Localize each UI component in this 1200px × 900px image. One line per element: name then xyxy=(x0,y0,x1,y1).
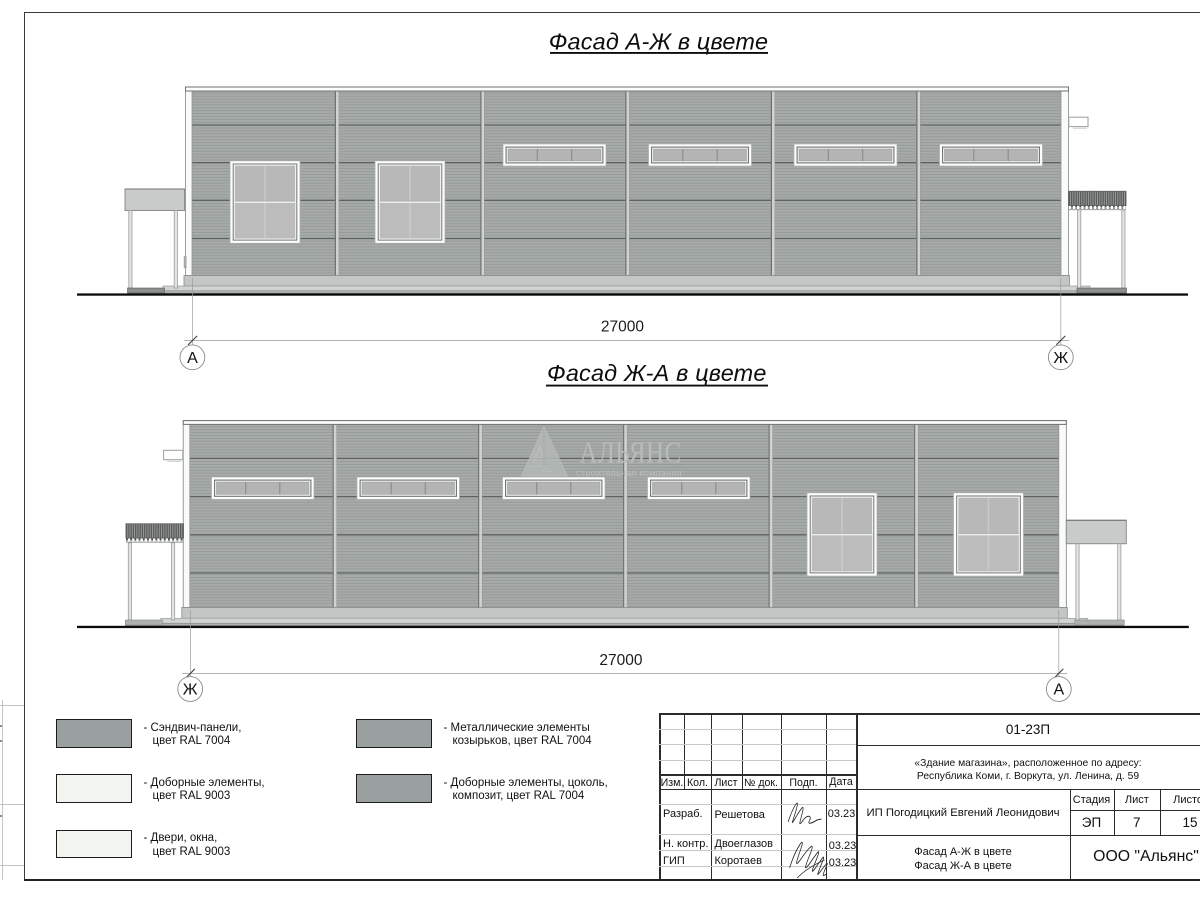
svg-text:Ж: Ж xyxy=(1053,350,1068,367)
svg-text:А: А xyxy=(1053,682,1064,699)
svg-text:Ж: Ж xyxy=(183,682,198,699)
svg-text:АЛЬЯНС: АЛЬЯНС xyxy=(579,436,681,470)
svg-text:А: А xyxy=(187,350,198,367)
svg-text:27000: 27000 xyxy=(599,652,642,669)
svg-text:строительная компания: строительная компания xyxy=(576,468,682,478)
svg-text:Фасад Ж-А в цвете: Фасад Ж-А в цвете xyxy=(547,360,767,386)
svg-text:27000: 27000 xyxy=(601,319,644,336)
svg-text:Фасад А-Ж в цвете: Фасад А-Ж в цвете xyxy=(549,28,769,54)
